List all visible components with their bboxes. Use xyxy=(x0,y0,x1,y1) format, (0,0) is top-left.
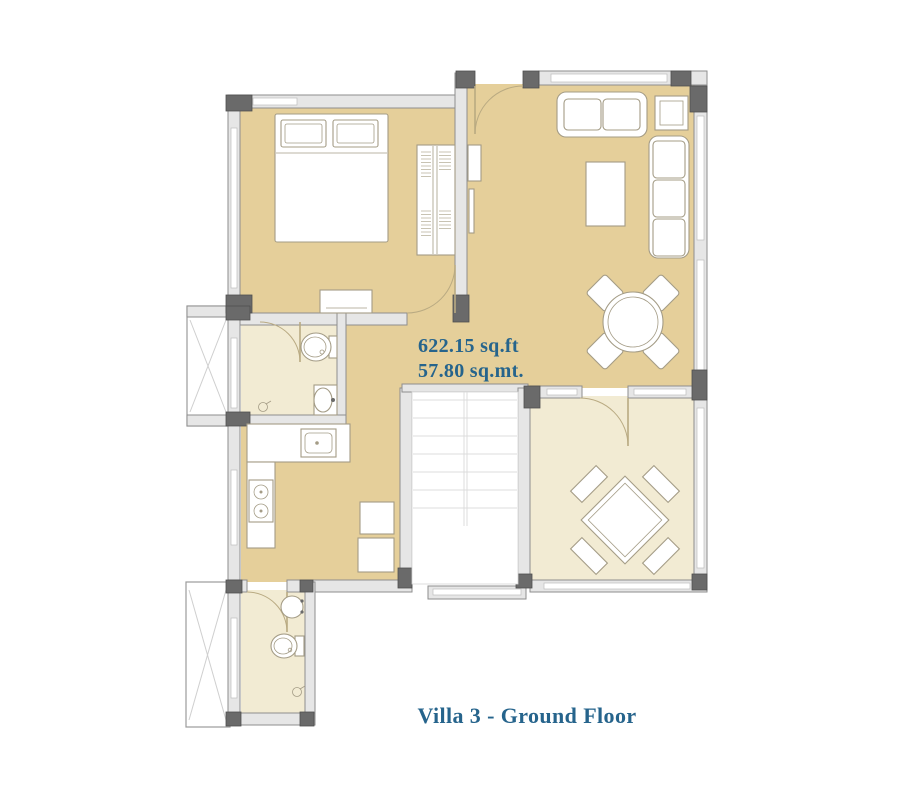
kitchen-sink xyxy=(301,429,336,457)
terrace-bottom-left xyxy=(186,582,230,727)
bedroom-bottom-wall xyxy=(228,313,407,325)
side-table xyxy=(655,96,688,130)
bedroom-left-window xyxy=(231,128,237,288)
coffee-table xyxy=(586,162,625,226)
dining-bottom-window xyxy=(544,583,690,589)
double-bed xyxy=(275,114,388,242)
hall-shelf xyxy=(468,145,481,181)
dining-top-window-right xyxy=(634,389,686,395)
area-sqmt-label: 57.80 sq.mt. xyxy=(418,360,524,382)
column xyxy=(523,71,539,88)
living-right-window-1 xyxy=(697,116,704,240)
kitchen-left-window xyxy=(231,470,237,545)
column xyxy=(524,386,540,408)
bathroom-guest-right-wall xyxy=(305,582,315,725)
column xyxy=(226,412,250,426)
balcony-left xyxy=(187,306,229,426)
column xyxy=(300,580,313,592)
dining-room-furniture xyxy=(571,466,680,575)
column xyxy=(226,306,250,320)
area-sqft-label: 622.15 sq.ft xyxy=(418,335,519,357)
column xyxy=(690,86,707,112)
dresser xyxy=(320,290,372,313)
living-top-window xyxy=(551,74,667,82)
toilet xyxy=(271,634,304,658)
toilet xyxy=(301,333,337,361)
bathroom-guest-left-window xyxy=(231,618,237,698)
column xyxy=(300,712,314,726)
washbasin xyxy=(281,596,304,618)
stairs-left-wall xyxy=(400,388,412,585)
column xyxy=(226,95,252,111)
floor-plan-page: 622.15 sq.ft 57.80 sq.mt. Villa 3 - Grou… xyxy=(0,0,900,800)
balcony-wall-bottom xyxy=(187,415,229,426)
column xyxy=(516,574,532,588)
column xyxy=(456,71,475,88)
balcony-wall-top xyxy=(187,306,229,317)
refrigerator xyxy=(360,502,394,534)
wardrobe xyxy=(417,145,455,255)
washbasin xyxy=(314,385,337,415)
column xyxy=(398,568,412,588)
sofa-three-seat xyxy=(649,136,689,258)
table-top xyxy=(603,292,663,352)
bathroom-ensuite-right-wall xyxy=(337,313,346,424)
plan-title: Villa 3 - Ground Floor xyxy=(417,703,636,728)
column xyxy=(692,370,707,400)
living-right-window-2 xyxy=(697,260,704,370)
central-wall xyxy=(455,73,467,297)
hall-panel xyxy=(469,189,474,233)
stairs-bottom-window xyxy=(433,589,521,595)
stairs-top-wall xyxy=(402,384,528,392)
column xyxy=(692,574,707,590)
dining-right-window xyxy=(697,408,704,568)
column xyxy=(226,580,242,593)
bathroom-left-window xyxy=(231,338,237,408)
stove xyxy=(249,480,273,522)
stair-well xyxy=(412,392,518,584)
corridor-kitchen-strip-floor xyxy=(346,390,402,428)
bedroom-top-window xyxy=(253,98,297,105)
column xyxy=(226,712,241,726)
stairs-right-wall xyxy=(518,388,530,584)
floor-plan-drawing: 622.15 sq.ft 57.80 sq.mt. Villa 3 - Grou… xyxy=(0,0,900,800)
sofa-two-seat xyxy=(557,92,647,137)
dining-top-window-left xyxy=(547,389,577,395)
column xyxy=(671,71,691,86)
staircase xyxy=(412,392,518,584)
kitchen-cabinet xyxy=(358,538,394,572)
